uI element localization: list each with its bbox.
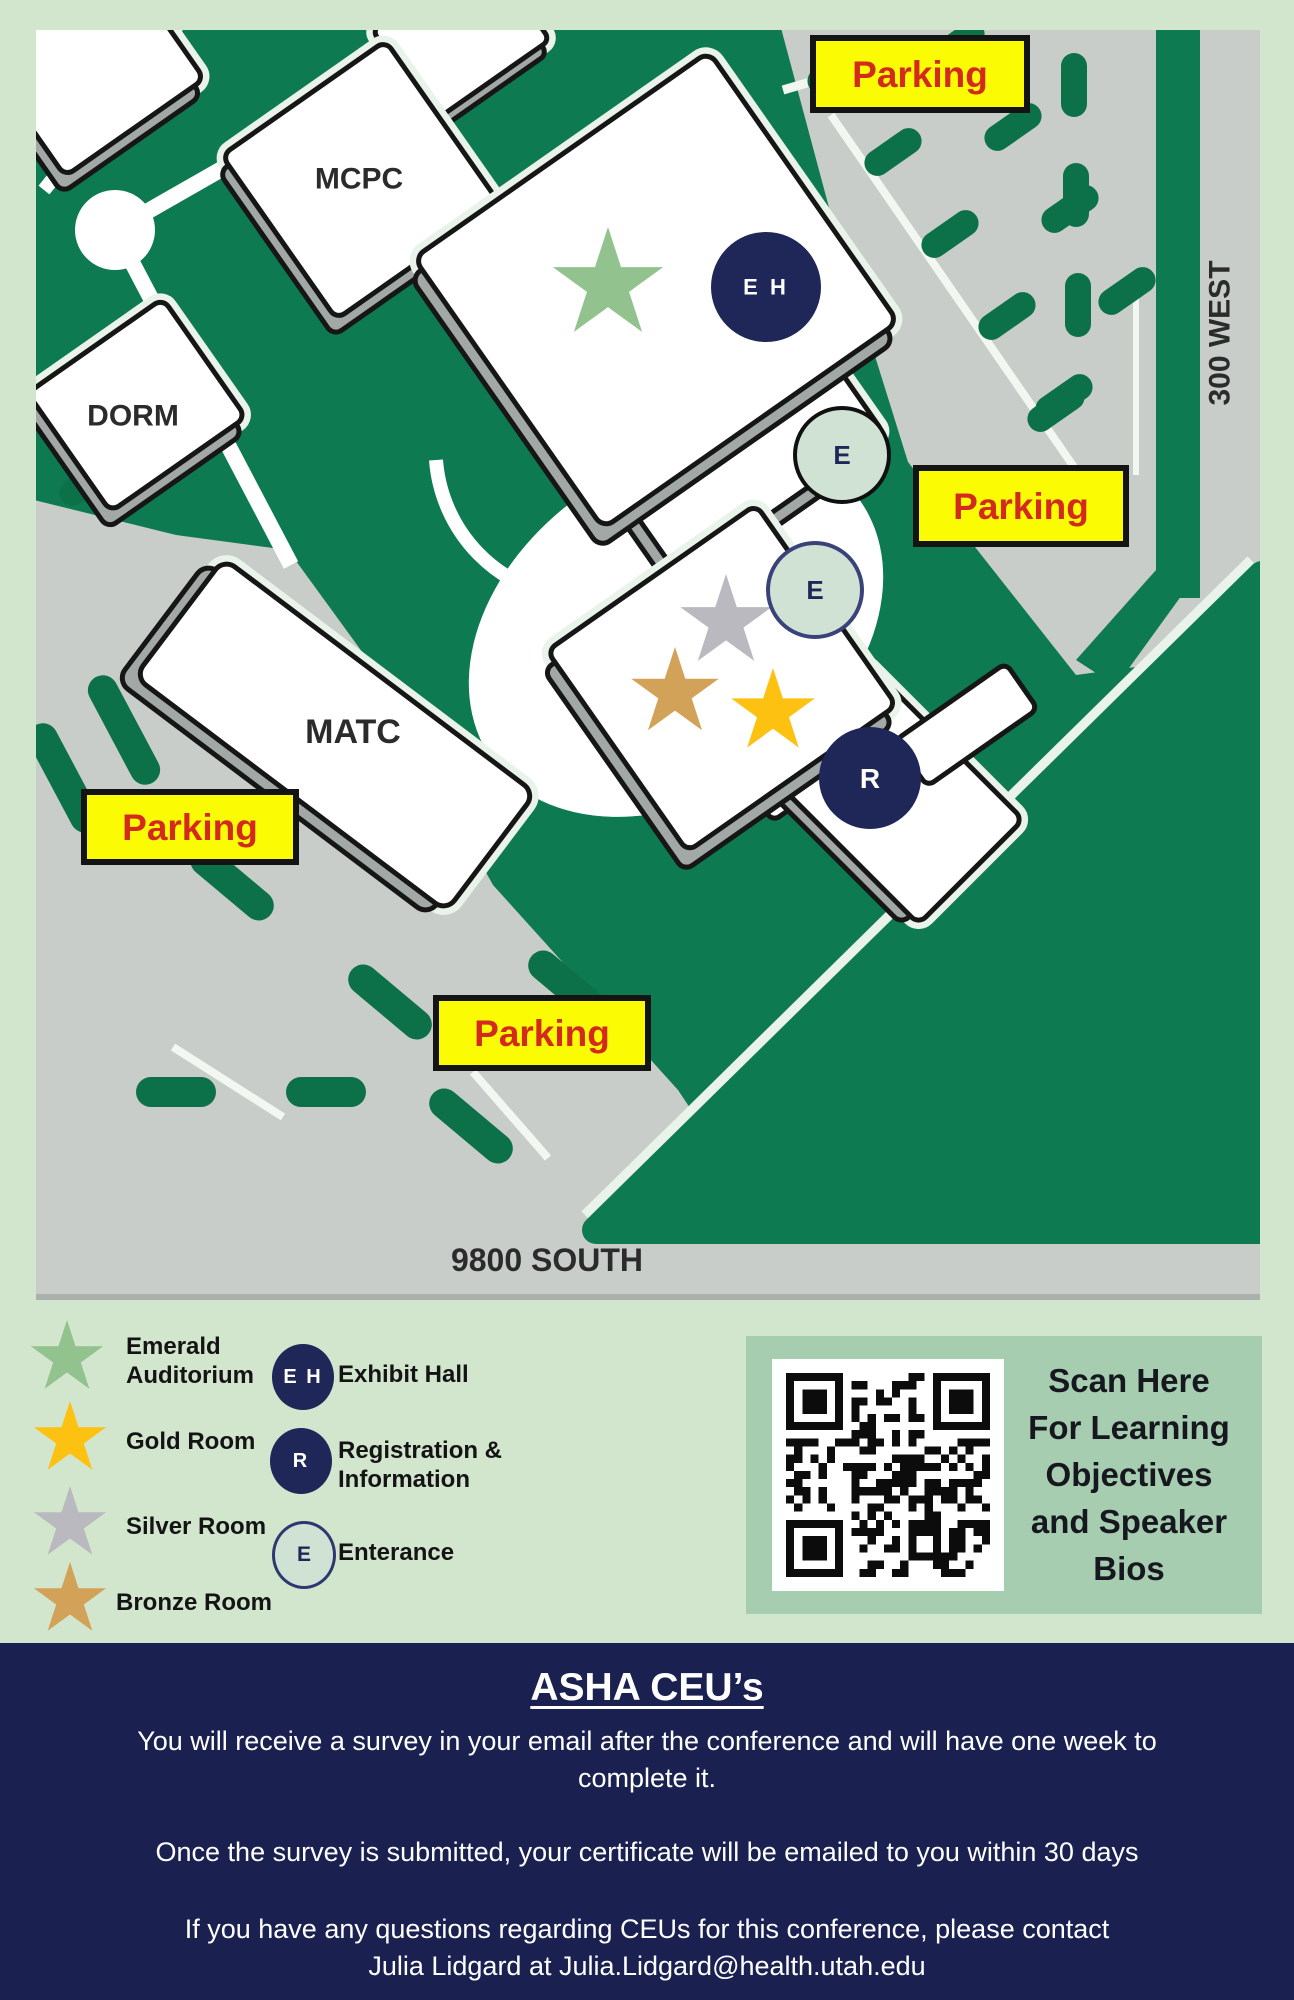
- gold-star-icon: [30, 1399, 110, 1479]
- entrance-icon: E: [272, 1521, 336, 1589]
- entrance-marker-south: E: [768, 543, 862, 637]
- footer-contact-email: Julia Lidgard at Julia.Lidgard@health.ut…: [368, 1951, 925, 1981]
- silver-star-icon: [30, 1484, 110, 1564]
- bronze-star-icon: [30, 1560, 110, 1640]
- legend-label-bronze-room: Bronze Room: [116, 1588, 336, 1617]
- footer-survey-note-line2: complete it.: [578, 1763, 716, 1793]
- legend-label-emerald-auditorium: Emerald Auditorium: [126, 1332, 276, 1390]
- exhibit-hall-icon: E H: [272, 1344, 334, 1410]
- matc-label: MATC: [305, 713, 401, 751]
- emerald-star-icon: [27, 1318, 107, 1398]
- footer-certificate-note: Once the survey is submitted, your certi…: [62, 1834, 1232, 1871]
- svg-text:E: E: [833, 440, 850, 470]
- footer-title: ASHA CEU’s: [0, 1666, 1294, 1710]
- legend-label-exhibit-hall: Exhibit Hall: [338, 1360, 469, 1389]
- parking-sign-south: Parking: [436, 998, 648, 1068]
- registration-marker: R: [819, 727, 921, 829]
- exhibit-hall-marker: E H: [711, 232, 821, 342]
- svg-text:E: E: [806, 575, 823, 605]
- qr-panel: Scan Here For Learning Objectives and Sp…: [746, 1336, 1262, 1614]
- entrance-marker-north: E: [795, 408, 889, 502]
- street-label-9800-south: 9800 SOUTH: [451, 1242, 643, 1278]
- qr-caption-line: Scan Here: [1004, 1357, 1254, 1404]
- parking-sign-west: Parking: [84, 792, 296, 862]
- map-bottom-edge: [36, 1294, 1260, 1300]
- svg-text:Parking: Parking: [852, 54, 988, 95]
- qr-caption-line: Bios: [1004, 1545, 1254, 1592]
- campus-map-svg: MCPC DORM: [36, 30, 1260, 1300]
- footer-survey-note-line1: You will receive a survey in your email …: [137, 1726, 1157, 1756]
- svg-text:Parking: Parking: [122, 807, 258, 848]
- parking-sign-north: Parking: [813, 38, 1027, 110]
- mcpc-label: MCPC: [315, 163, 403, 196]
- qr-caption: Scan Here For Learning Objectives and Sp…: [1004, 1357, 1254, 1592]
- qr-code[interactable]: [772, 1359, 1004, 1591]
- flyer-page: MCPC DORM: [0, 0, 1294, 2000]
- legend-label-registration: Registration & Information: [338, 1436, 523, 1494]
- svg-text:E H: E H: [743, 275, 789, 300]
- street-label-300-west: 300 WEST: [1204, 260, 1237, 405]
- svg-text:Parking: Parking: [953, 486, 1089, 527]
- campus-map: MCPC DORM: [36, 30, 1260, 1300]
- footer-contact-line1: If you have any questions regarding CEUs…: [185, 1914, 1110, 1944]
- qr-caption-line: Objectives: [1004, 1451, 1254, 1498]
- dorm-label: DORM: [87, 400, 179, 433]
- qr-caption-line: For Learning: [1004, 1404, 1254, 1451]
- parking-sign-east: Parking: [916, 468, 1126, 544]
- footer: ASHA CEU’s You will receive a survey in …: [0, 1643, 1294, 2000]
- qr-code-image[interactable]: [786, 1373, 990, 1577]
- svg-text:Parking: Parking: [474, 1013, 610, 1054]
- legend-label-enterance: Enterance: [338, 1538, 454, 1567]
- qr-caption-line: and Speaker: [1004, 1498, 1254, 1545]
- footer-contact-note: If you have any questions regarding CEUs…: [62, 1911, 1232, 1985]
- footer-survey-note: You will receive a survey in your email …: [62, 1723, 1232, 1797]
- registration-icon: R: [270, 1428, 332, 1494]
- svg-text:R: R: [860, 763, 880, 794]
